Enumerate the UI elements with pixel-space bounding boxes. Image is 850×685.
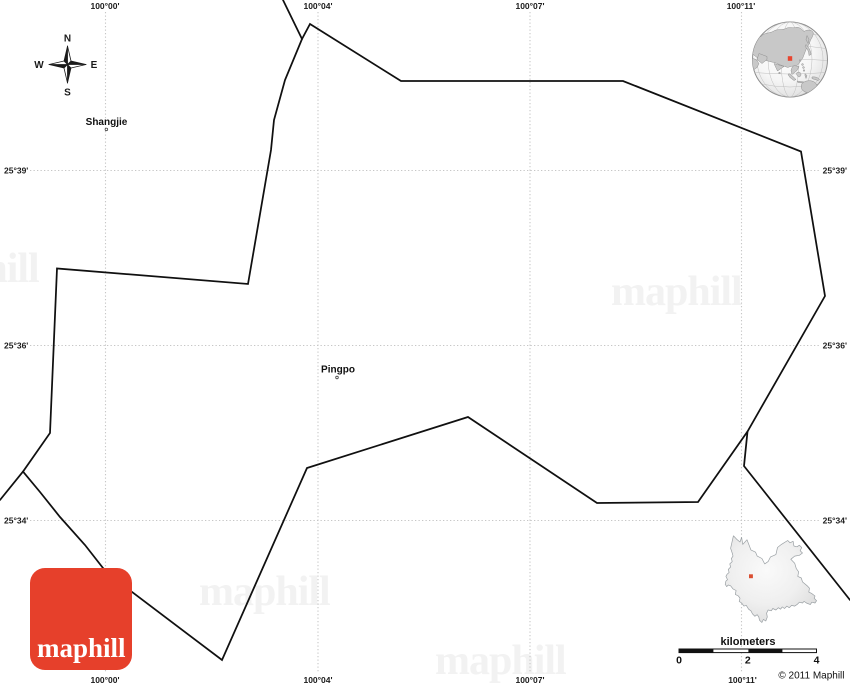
svg-text:25°34': 25°34'	[4, 516, 28, 526]
svg-text:100°07': 100°07'	[515, 675, 544, 685]
svg-text:© 2011 Maphill: © 2011 Maphill	[778, 671, 844, 682]
svg-text:100°11': 100°11'	[727, 1, 756, 11]
svg-text:2: 2	[745, 655, 751, 667]
svg-text:100°04': 100°04'	[303, 1, 332, 11]
svg-text:maphill: maphill	[435, 638, 566, 684]
svg-text:100°04': 100°04'	[303, 675, 332, 685]
svg-text:maphill: maphill	[37, 633, 126, 663]
svg-text:Pingpo: Pingpo	[321, 365, 355, 376]
svg-text:100°00': 100°00'	[90, 675, 119, 685]
svg-text:maphill: maphill	[199, 569, 330, 615]
svg-text:25°36': 25°36'	[4, 341, 28, 351]
svg-text:0: 0	[676, 655, 682, 667]
svg-text:25°36': 25°36'	[823, 341, 847, 351]
svg-text:N: N	[64, 34, 71, 45]
svg-text:maphill: maphill	[611, 269, 742, 315]
svg-text:100°00': 100°00'	[90, 1, 119, 11]
svg-text:100°11': 100°11'	[728, 675, 757, 685]
svg-text:25°39': 25°39'	[823, 166, 847, 176]
svg-text:4: 4	[814, 655, 820, 667]
svg-text:maphill: maphill	[0, 246, 39, 292]
svg-text:25°34': 25°34'	[823, 516, 847, 526]
svg-text:Shangjie: Shangjie	[86, 117, 128, 128]
svg-text:W: W	[34, 60, 44, 71]
svg-text:S: S	[64, 88, 71, 99]
svg-text:100°07': 100°07'	[515, 1, 544, 11]
svg-text:E: E	[91, 60, 98, 71]
svg-text:kilometers: kilometers	[720, 636, 775, 648]
svg-text:25°39': 25°39'	[4, 166, 28, 176]
